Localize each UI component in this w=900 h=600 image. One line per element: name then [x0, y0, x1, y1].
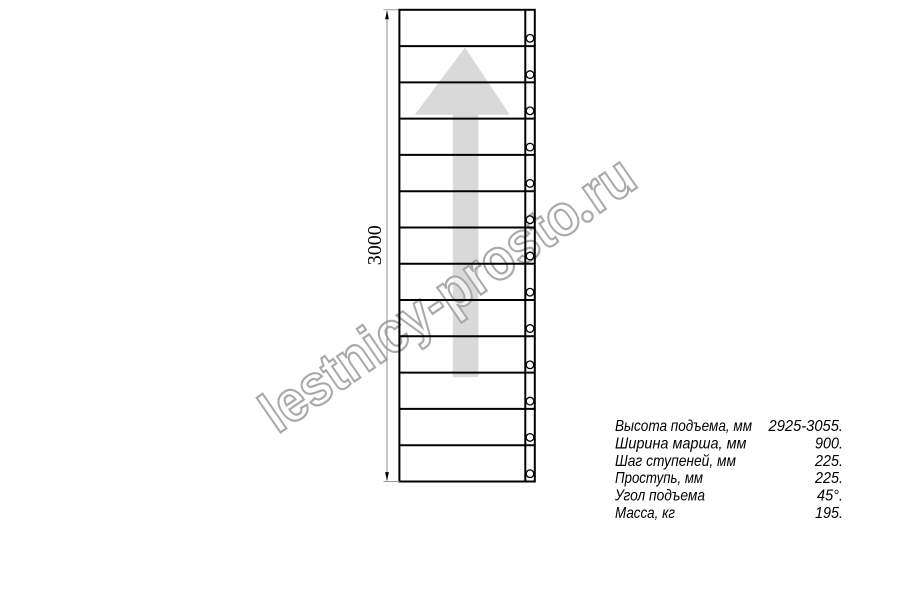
svg-text:Угол подъема: Угол подъема: [614, 488, 705, 505]
svg-text:Масса, кг: Масса, кг: [615, 505, 675, 522]
svg-text:Высота подъема, мм: Высота подъема, мм: [615, 418, 752, 435]
svg-text:Проступь, мм: Проступь, мм: [615, 470, 703, 487]
svg-text:900.: 900.: [815, 435, 843, 452]
svg-text:lestnicy-prosto: lestnicy-prosto: [248, 180, 592, 445]
svg-text:Ширина марша, мм: Ширина марша, мм: [615, 435, 746, 452]
svg-text:195.: 195.: [815, 505, 843, 522]
svg-text:45°.: 45°.: [817, 488, 843, 505]
svg-text:225.: 225.: [814, 470, 843, 487]
svg-text:ru: ru: [568, 143, 648, 226]
svg-text:3000: 3000: [364, 225, 386, 265]
svg-text:Шаг ступеней, мм: Шаг ступеней, мм: [615, 453, 736, 470]
svg-text:225.: 225.: [814, 453, 843, 470]
svg-text:2925-3055.: 2925-3055.: [768, 418, 843, 435]
